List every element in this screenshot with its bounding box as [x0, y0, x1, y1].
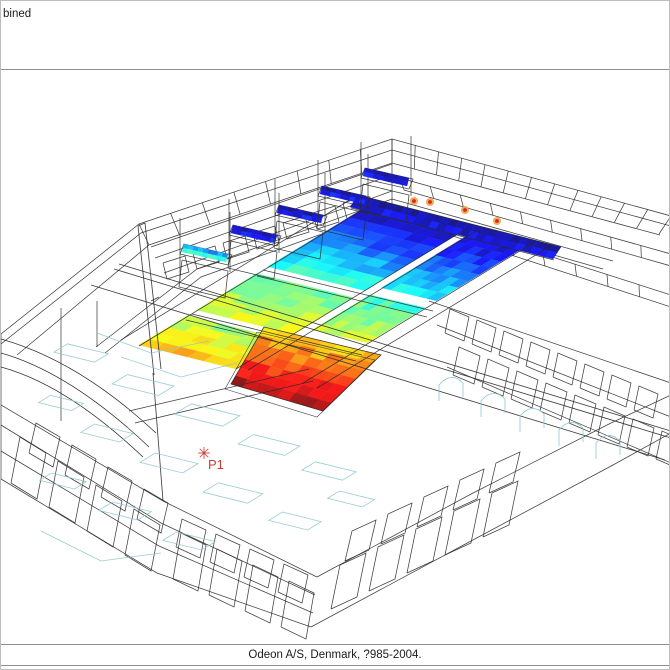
room-model-3d-viewport[interactable]: P1: [1, 1, 670, 670]
odeon-3d-view-window: bined P1 Odeon A/S, Denmark, ?985-2004.: [0, 0, 670, 670]
source-marker[interactable]: P1: [198, 447, 224, 472]
source-marker-label: P1: [208, 457, 224, 472]
copyright-bar: Odeon A/S, Denmark, ?985-2004.: [1, 644, 669, 666]
view-header: bined: [1, 1, 669, 70]
view-title: bined: [3, 8, 31, 20]
copyright-text: Odeon A/S, Denmark, ?985-2004.: [248, 649, 421, 661]
